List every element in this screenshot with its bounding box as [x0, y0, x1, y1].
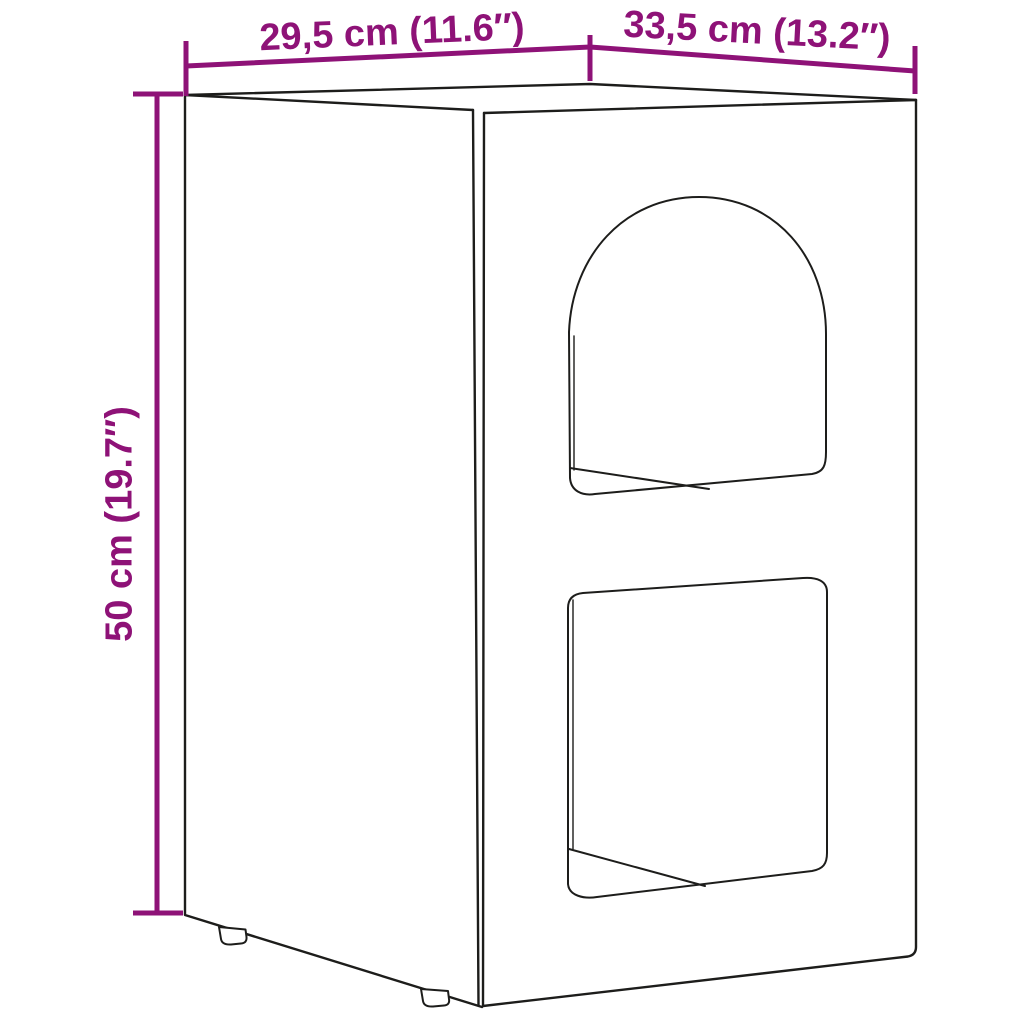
- furniture-outline: [185, 84, 916, 1007]
- dimension-lines: [133, 35, 915, 913]
- left-face-top-edge: [185, 95, 473, 110]
- dimension-label-height: 50 cm (19.7″): [99, 406, 142, 642]
- feet: [219, 927, 449, 1007]
- foot-back-left: [219, 927, 247, 945]
- dimension-diagram: 29,5 cm (11.6″) 33,5 cm (13.2″) 50 cm (1…: [0, 0, 1024, 1024]
- foot-front-left: [421, 989, 449, 1007]
- left-face-edges: [185, 95, 482, 1007]
- front-left-corner-edge-b: [483, 113, 484, 1006]
- arch-opening: [569, 197, 826, 494]
- arch-opening-outline: [569, 197, 826, 494]
- front-left-corner-edge-a: [473, 110, 479, 1005]
- square-opening: [568, 578, 827, 898]
- square-opening-floor-line: [569, 849, 705, 886]
- product-line-drawing: [0, 0, 1024, 1024]
- arch-opening-floor-line: [570, 468, 709, 489]
- front-face-top-edge: [484, 100, 916, 113]
- square-opening-outline: [568, 578, 827, 898]
- top-face-back-edges: [185, 84, 916, 100]
- front-face-right-bottom-edges: [483, 100, 916, 1006]
